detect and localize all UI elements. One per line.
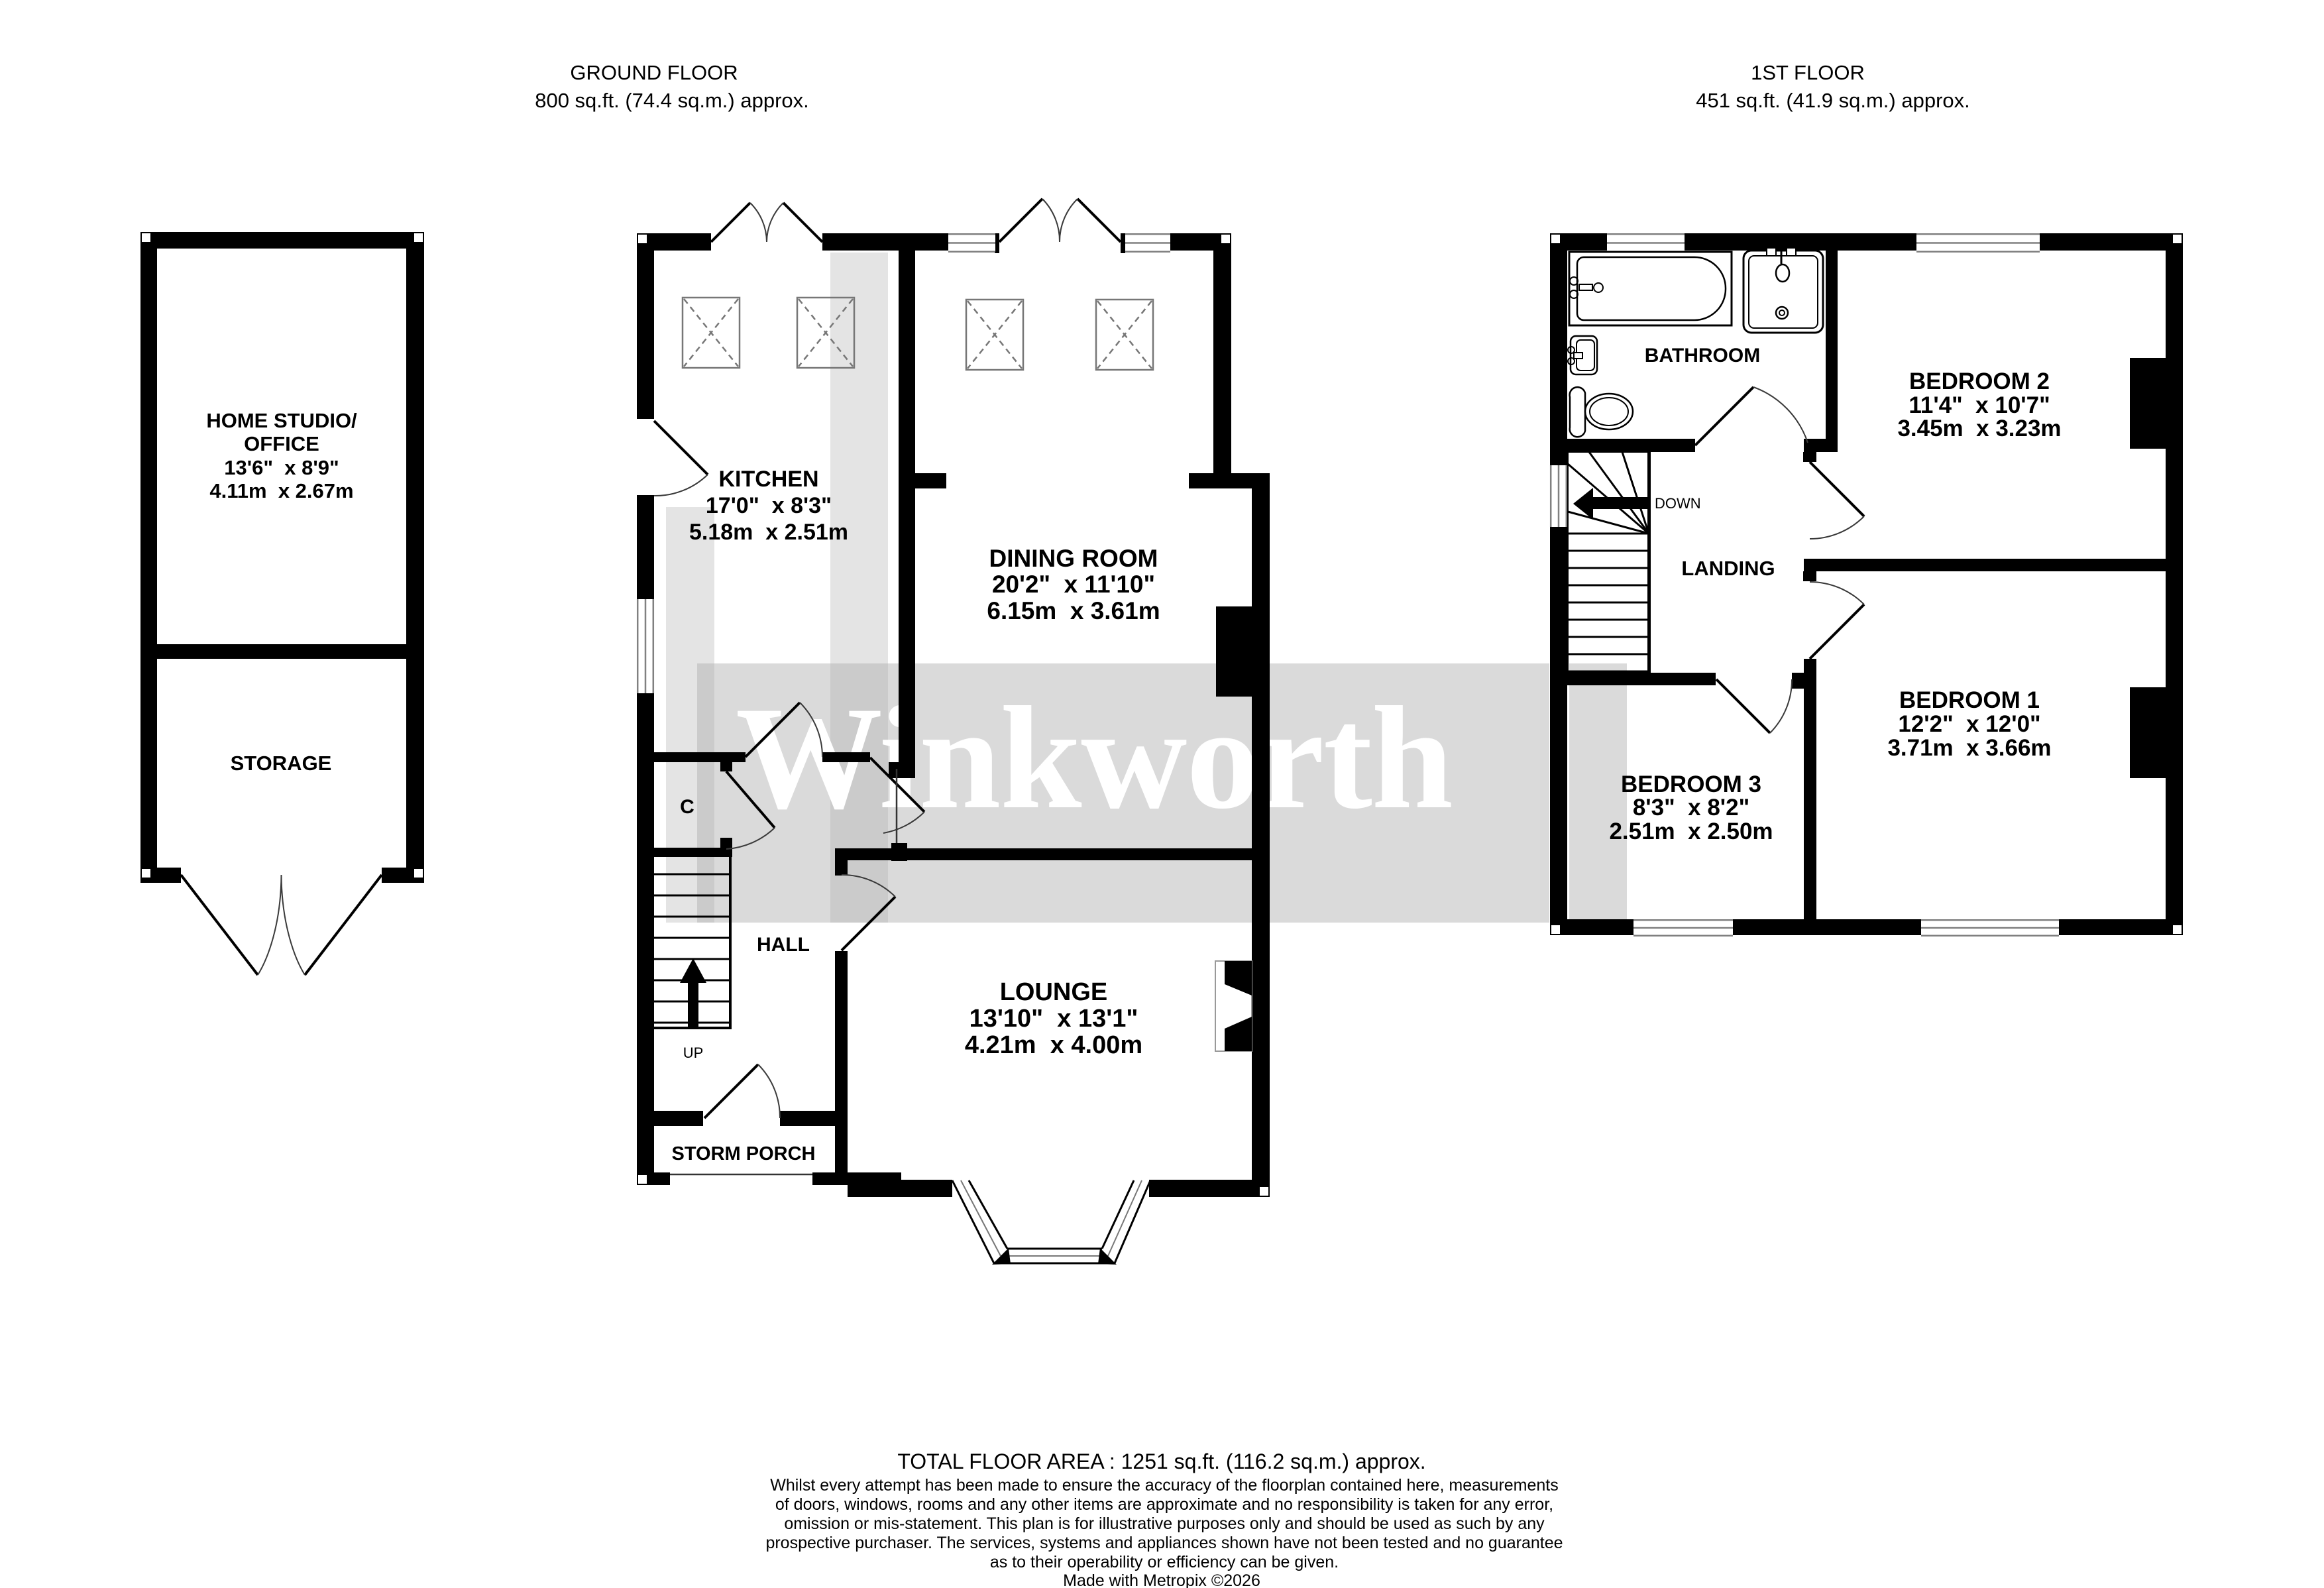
svg-text:BEDROOM 2: BEDROOM 2 — [1909, 369, 2050, 394]
svg-text:GROUND FLOOR: GROUND FLOOR — [570, 61, 738, 84]
svg-text:Made with Metropix ©2026: Made with Metropix ©2026 — [1063, 1571, 1260, 1588]
svg-text:13'6" x 8'9": 13'6" x 8'9" — [224, 456, 339, 479]
svg-text:Whilst every attempt has been: Whilst every attempt has been made to en… — [770, 1476, 1559, 1495]
svg-text:13'10" x 13'1": 13'10" x 13'1" — [969, 1005, 1138, 1033]
svg-text:8'3" x 8'2": 8'3" x 8'2" — [1633, 795, 1749, 821]
svg-text:LANDING: LANDING — [1681, 557, 1775, 580]
svg-text:OFFICE: OFFICE — [244, 432, 319, 455]
svg-text:HOME STUDIO/: HOME STUDIO/ — [206, 409, 357, 432]
svg-text:HALL: HALL — [757, 934, 810, 956]
svg-text:4.11m x 2.67m: 4.11m x 2.67m — [209, 479, 353, 502]
svg-text:1ST FLOOR: 1ST FLOOR — [1751, 61, 1865, 84]
svg-text:STORAGE: STORAGE — [231, 752, 332, 775]
svg-text:UP: UP — [683, 1045, 704, 1061]
svg-text:TOTAL FLOOR AREA : 1251 sq.ft.: TOTAL FLOOR AREA : 1251 sq.ft. (116.2 sq… — [897, 1449, 1425, 1473]
svg-text:800 sq.ft. (74.4 sq.m.) approx: 800 sq.ft. (74.4 sq.m.) approx. — [535, 89, 809, 112]
svg-text:prospective purchaser. The ser: prospective purchaser. The services, sys… — [765, 1534, 1563, 1552]
svg-text:BATHROOM: BATHROOM — [1645, 345, 1760, 367]
svg-text:5.18m x 2.51m: 5.18m x 2.51m — [689, 520, 848, 545]
svg-text:C: C — [680, 796, 694, 818]
svg-text:451 sq.ft. (41.9 sq.m.) approx: 451 sq.ft. (41.9 sq.m.) approx. — [1696, 89, 1970, 112]
svg-text:omission or mis-statement. Thi: omission or mis-statement. This plan is … — [784, 1514, 1545, 1533]
svg-text:BEDROOM 1: BEDROOM 1 — [1899, 687, 2040, 713]
svg-text:DINING ROOM: DINING ROOM — [989, 545, 1158, 572]
svg-text:LOUNGE: LOUNGE — [1000, 978, 1108, 1006]
svg-text:20'2" x 11'10": 20'2" x 11'10" — [992, 571, 1155, 598]
svg-text:17'0" x 8'3": 17'0" x 8'3" — [706, 493, 832, 518]
svg-text:3.71m x 3.66m: 3.71m x 3.66m — [1887, 735, 2051, 761]
svg-text:4.21m x 4.00m: 4.21m x 4.00m — [965, 1031, 1142, 1059]
svg-text:12'2" x 12'0": 12'2" x 12'0" — [1898, 711, 2040, 737]
svg-text:DOWN: DOWN — [1655, 495, 1701, 512]
svg-text:6.15m x 3.61m: 6.15m x 3.61m — [987, 597, 1160, 624]
svg-text:as to their operability or eff: as to their operability or efficiency ca… — [990, 1553, 1339, 1571]
svg-text:STORM PORCH: STORM PORCH — [672, 1143, 816, 1164]
svg-text:11'4" x 10'7": 11'4" x 10'7" — [1909, 392, 2050, 418]
svg-text:BEDROOM 3: BEDROOM 3 — [1621, 771, 1761, 797]
svg-text:2.51m x 2.50m: 2.51m x 2.50m — [1609, 819, 1773, 844]
svg-text:3.45m x 3.23m: 3.45m x 3.23m — [1897, 416, 2061, 441]
svg-text:of doors, windows, rooms and a: of doors, windows, rooms and any other i… — [775, 1495, 1553, 1514]
svg-text:KITCHEN: KITCHEN — [718, 467, 818, 492]
